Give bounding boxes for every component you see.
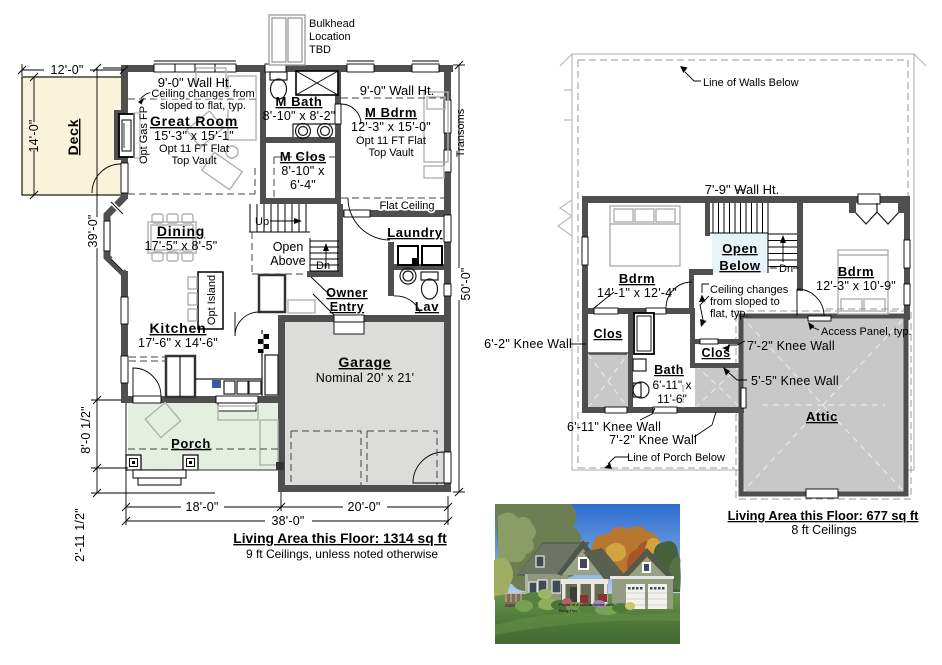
svg-text:Great Room: Great Room xyxy=(150,113,238,129)
svg-text:Line of Walls Below: Line of Walls Below xyxy=(703,77,799,89)
svg-text:12'-3" x 10'-9": 12'-3" x 10'-9" xyxy=(816,279,896,293)
svg-text:Clos: Clos xyxy=(593,327,622,341)
svg-text:6'-11" Knee Wall: 6'-11" Knee Wall xyxy=(567,420,661,434)
svg-text:8'-0 1/2": 8'-0 1/2" xyxy=(79,406,93,454)
svg-text:17'-6" x 14'-6": 17'-6" x 14'-6" xyxy=(138,336,218,350)
svg-text:Bolly Hoo: Bolly Hoo xyxy=(559,608,578,613)
svg-text:Bath: Bath xyxy=(654,363,684,377)
svg-text:Opt 11 FT Flat: Opt 11 FT Flat xyxy=(159,143,229,155)
svg-text:Bulkhead: Bulkhead xyxy=(309,18,355,30)
svg-text:2'-11 1/2": 2'-11 1/2" xyxy=(73,508,87,562)
svg-text:12'-3" x 15'-0": 12'-3" x 15'-0" xyxy=(351,120,431,134)
svg-text:9 ft Ceilings, unless noted ot: 9 ft Ceilings, unless noted otherwise xyxy=(246,547,438,561)
svg-text:Entry: Entry xyxy=(330,300,364,314)
svg-text:Deck: Deck xyxy=(65,119,81,156)
svg-text:14'-1" x 12'-4": 14'-1" x 12'-4" xyxy=(597,286,677,300)
svg-text:Open: Open xyxy=(273,240,304,254)
svg-text:Laundry: Laundry xyxy=(387,225,443,240)
svg-text:Location: Location xyxy=(309,31,351,43)
svg-text:Nominal 20' x 21': Nominal 20' x 21' xyxy=(316,371,415,385)
svg-text:Dn: Dn xyxy=(779,263,793,275)
svg-text:flat, typ.: flat, typ. xyxy=(710,308,749,320)
svg-text:Photo of a similar home built: Photo of a similar home built xyxy=(559,602,615,607)
svg-text:Line of Porch Below: Line of Porch Below xyxy=(627,452,725,464)
svg-text:Opt 11 FT Flat: Opt 11 FT Flat xyxy=(356,135,426,147)
svg-text:M Bath: M Bath xyxy=(276,94,323,109)
svg-text:50'-0": 50'-0" xyxy=(459,267,473,300)
svg-text:Top Vault: Top Vault xyxy=(171,155,216,167)
svg-text:39'-0": 39'-0" xyxy=(86,214,100,247)
svg-text:5'-5" Knee Wall: 5'-5" Knee Wall xyxy=(751,374,839,388)
svg-text:38'-0": 38'-0" xyxy=(271,514,304,528)
svg-text:Dn: Dn xyxy=(316,260,330,272)
svg-text:7'-9" Wall Ht.: 7'-9" Wall Ht. xyxy=(705,182,780,197)
svg-text:Porch: Porch xyxy=(171,436,211,451)
svg-text:6'-11" x: 6'-11" x xyxy=(652,378,691,392)
svg-text:Ceiling changes from: Ceiling changes from xyxy=(151,88,254,100)
svg-text:Up: Up xyxy=(255,216,269,228)
svg-text:17'-5" x 8'-5": 17'-5" x 8'-5" xyxy=(145,239,218,253)
svg-text:Dining: Dining xyxy=(157,223,205,239)
svg-text:Opt Gas FP: Opt Gas FP xyxy=(138,106,150,164)
svg-text:Bdrm: Bdrm xyxy=(619,271,655,286)
svg-text:Living Area this Floor: 677 sq: Living Area this Floor: 677 sq ft xyxy=(728,508,920,523)
svg-text:Lav: Lav xyxy=(415,299,439,314)
svg-text:15'-3" x 15'-1": 15'-3" x 15'-1" xyxy=(154,129,234,143)
svg-text:sloped to flat, typ.: sloped to flat, typ. xyxy=(160,100,246,112)
svg-text:9'-0" Wall Ht.: 9'-0" Wall Ht. xyxy=(360,83,435,98)
svg-text:Owner: Owner xyxy=(326,286,367,300)
svg-text:7'-2" Knee Wall: 7'-2" Knee Wall xyxy=(747,339,835,353)
svg-text:Ceiling changes: Ceiling changes xyxy=(710,284,789,296)
svg-text:Open: Open xyxy=(722,241,758,256)
svg-text:8'-10" x 8'-2": 8'-10" x 8'-2" xyxy=(263,109,336,123)
svg-text:Opt Island: Opt Island xyxy=(206,275,218,325)
svg-text:7'-2" Knee Wall: 7'-2" Knee Wall xyxy=(609,433,697,447)
svg-text:M Clos: M Clos xyxy=(280,149,326,164)
svg-text:Attic: Attic xyxy=(806,409,838,424)
svg-text:Kitchen: Kitchen xyxy=(150,320,207,336)
svg-text:Garage: Garage xyxy=(338,354,391,370)
svg-text:Transoms: Transoms xyxy=(455,108,467,157)
svg-text:Access Panel, typ.: Access Panel, typ. xyxy=(821,326,912,338)
svg-text:6'-2" Knee Wall: 6'-2" Knee Wall xyxy=(484,337,572,351)
svg-text:8 ft Ceilings: 8 ft Ceilings xyxy=(791,523,856,537)
svg-text:20'-0": 20'-0" xyxy=(347,500,380,514)
svg-text:Above: Above xyxy=(270,254,305,268)
svg-text:TBD: TBD xyxy=(309,44,331,56)
svg-text:8'-10" x: 8'-10" x xyxy=(281,164,325,178)
svg-text:Living Area this Floor: 1314 s: Living Area this Floor: 1314 sq ft xyxy=(233,531,447,546)
svg-text:Flat Ceiling: Flat Ceiling xyxy=(379,200,434,212)
svg-text:12'-0": 12'-0" xyxy=(50,63,83,77)
svg-text:from sloped to: from sloped to xyxy=(710,296,780,308)
svg-text:11'-6": 11'-6" xyxy=(657,392,687,406)
svg-text:Top Vault: Top Vault xyxy=(368,147,413,159)
svg-text:14'-0": 14'-0" xyxy=(27,119,41,152)
svg-text:Below: Below xyxy=(719,258,761,273)
svg-text:6'-4": 6'-4" xyxy=(290,178,316,192)
svg-text:M Bdrm: M Bdrm xyxy=(365,105,417,120)
svg-text:18'-0": 18'-0" xyxy=(185,500,218,514)
svg-text:Clos: Clos xyxy=(701,346,730,360)
svg-text:Bdrm: Bdrm xyxy=(838,264,874,279)
